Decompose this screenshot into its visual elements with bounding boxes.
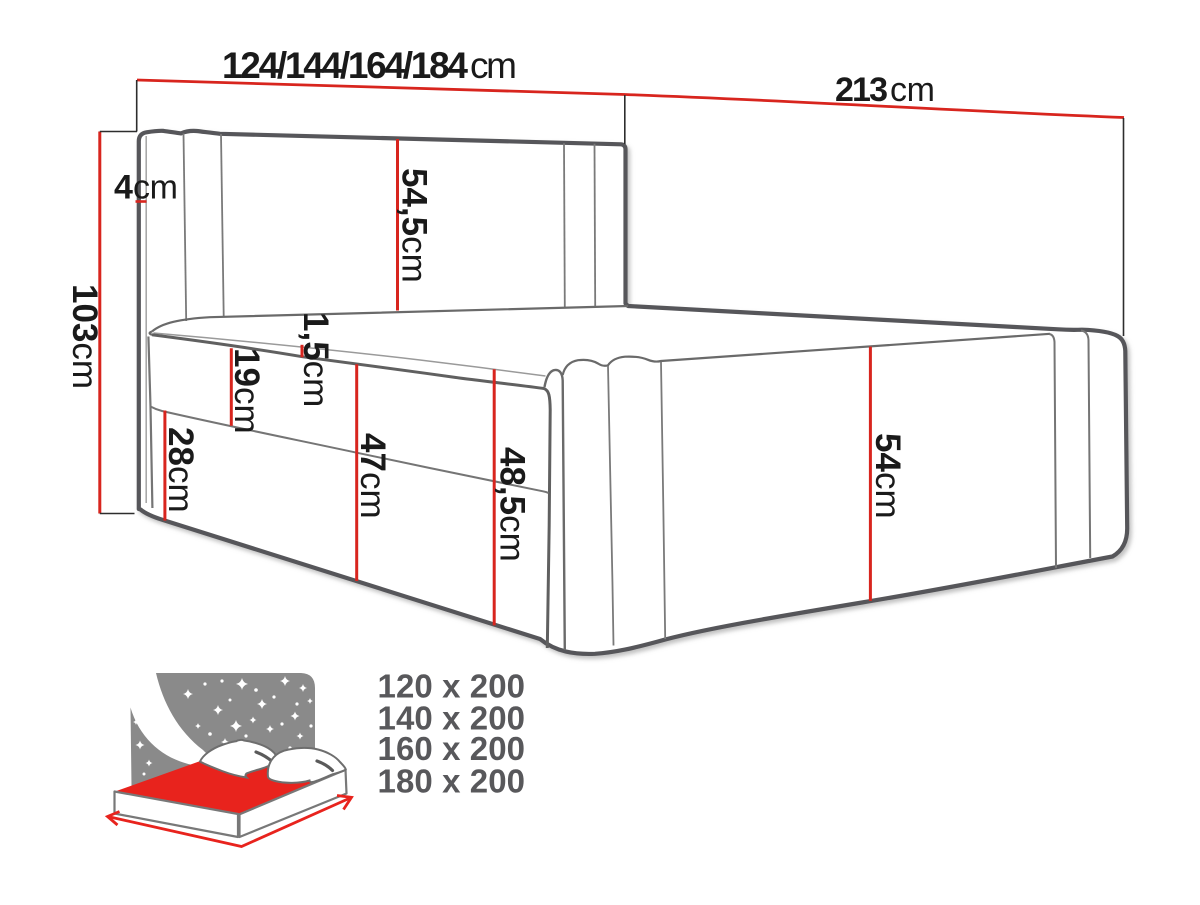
- svg-text:28cm: 28cm: [161, 427, 200, 513]
- svg-text:54cm: 54cm: [868, 433, 907, 519]
- svg-text:124/144/164/184: 124/144/164/184: [222, 45, 468, 86]
- svg-text:103cm: 103cm: [65, 284, 104, 389]
- svg-text:213: 213: [835, 71, 888, 109]
- svg-text:180 x 200: 180 x 200: [378, 763, 526, 800]
- svg-text:1,5cm: 1,5cm: [296, 312, 335, 407]
- svg-text:54,5cm: 54,5cm: [395, 168, 434, 283]
- svg-text:47cm: 47cm: [353, 433, 392, 519]
- svg-text:4: 4: [114, 169, 133, 207]
- svg-text:19cm: 19cm: [227, 348, 266, 434]
- svg-text:48,5cm: 48,5cm: [493, 447, 532, 562]
- svg-text:cm: cm: [890, 71, 935, 109]
- svg-text:cm: cm: [470, 45, 517, 86]
- svg-text:cm: cm: [133, 169, 178, 207]
